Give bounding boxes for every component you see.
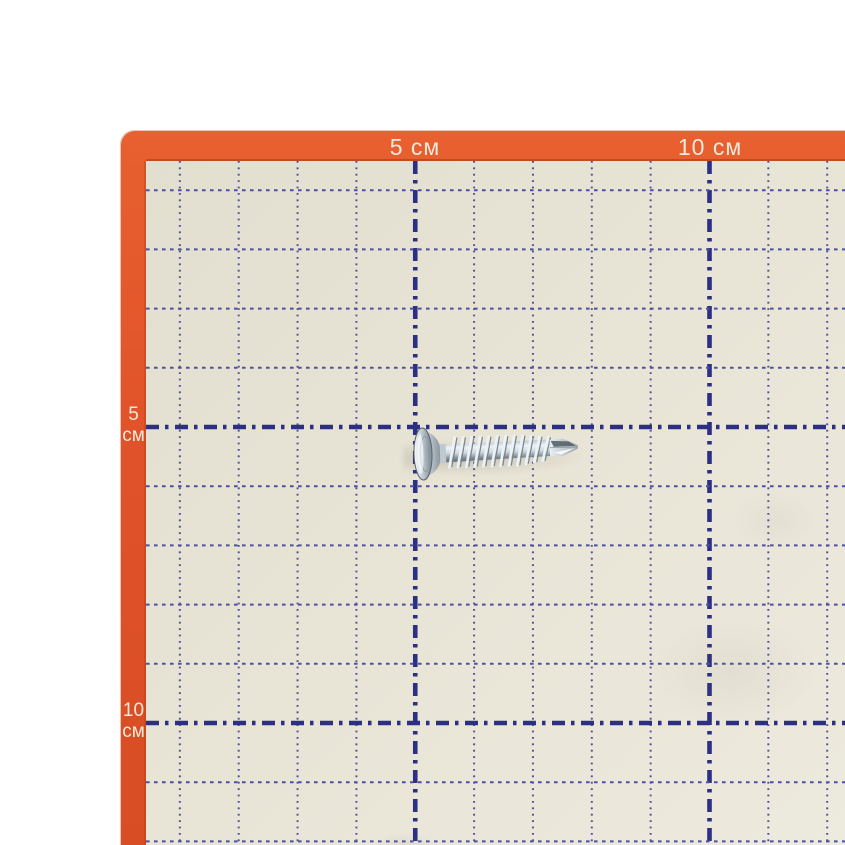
measuring-mat: 5 см 10 см 5 см 10 см [121, 131, 845, 845]
ruler-left-label-10cm: 10 см [120, 700, 147, 742]
ruler-top-label-10cm: 10 см [678, 134, 742, 160]
screw-body-group [413, 424, 578, 481]
ruler-left-label-10cm-unit: см [120, 721, 147, 742]
photo-scene: 5 см 10 см 5 см 10 см Zinc-plated self-d… [0, 0, 845, 845]
ruler-left-label-5cm-unit: см [120, 425, 147, 446]
screw-image: Zinc-plated self-drilling wafer-head scr… [409, 422, 583, 486]
ruler-left-label-5cm: 5 см [120, 404, 147, 446]
mat-surface [146, 161, 845, 845]
centimeter-grid [146, 161, 845, 845]
ruler-left-label-5cm-value: 5 [120, 404, 147, 425]
ruler-left-label-10cm-value: 10 [120, 700, 147, 721]
ruler-top-label-5cm: 5 см [390, 134, 441, 160]
